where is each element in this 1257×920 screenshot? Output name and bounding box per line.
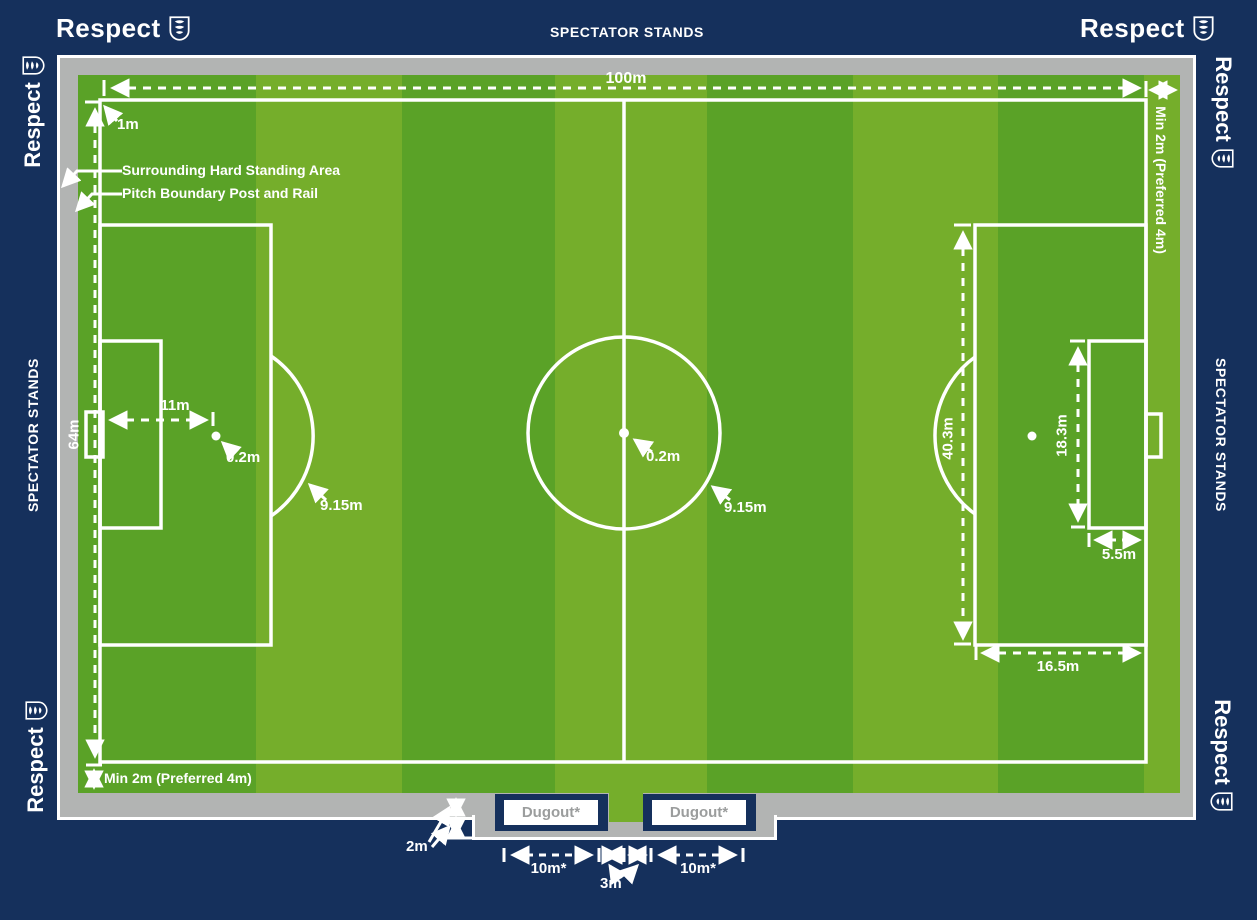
- penalty-area-left: [100, 225, 271, 645]
- penalty-arc-left: [271, 356, 313, 516]
- penalty-spot-right: [1028, 432, 1037, 441]
- spectator-stands-left: SPECTATOR STANDS: [18, 355, 48, 515]
- label-penalty-spot-size: 0.2m: [226, 449, 260, 466]
- label-dugout-offset-right: 10m*: [669, 860, 727, 877]
- label-goal-area-width: 18.3m: [1054, 401, 1071, 471]
- fa-crest-icon: [22, 56, 45, 75]
- label-goal-area-depth: 5.5m: [1093, 546, 1145, 563]
- fa-crest-icon: [1212, 149, 1235, 168]
- label-hard-standing: Surrounding Hard Standing Area: [122, 162, 340, 178]
- label-centre-circle-radius: 9.15m: [724, 499, 767, 516]
- pitch-diagram: Dugout* Dugout*: [0, 0, 1257, 920]
- spectator-stands-top: SPECTATOR STANDS: [450, 24, 804, 40]
- leader-3m-left: [610, 866, 616, 875]
- fa-crest-icon: [1211, 792, 1234, 811]
- label-dugout-gap: 3m: [600, 875, 622, 892]
- leader-1m: [105, 107, 117, 121]
- goal-area-left: [100, 341, 161, 528]
- spectator-stands-text: SPECTATOR STANDS: [1213, 358, 1229, 512]
- label-penalty-area-width: 40.3m: [940, 404, 957, 474]
- respect-text: Respect: [1209, 699, 1235, 785]
- respect-text: Respect: [56, 13, 161, 44]
- spectator-stands-text: SPECTATOR STANDS: [25, 358, 41, 512]
- respect-wordmark-right-top: Respect: [1208, 47, 1238, 177]
- respect-wordmark-left-bottom: Respect: [21, 692, 51, 822]
- label-pitch-width: 64m: [66, 403, 83, 467]
- label-runoff-bottom: Min 2m (Preferred 4m): [104, 770, 252, 786]
- label-standing-depth: 2m: [406, 838, 428, 855]
- respect-wordmark-top-right: Respect: [1080, 13, 1214, 44]
- goal-right: [1146, 414, 1161, 457]
- respect-text: Respect: [23, 727, 49, 813]
- centre-spot: [619, 428, 629, 438]
- fa-crest-icon: [169, 16, 190, 41]
- label-penalty-arc-radius: 9.15m: [320, 497, 363, 514]
- respect-text: Respect: [1080, 13, 1185, 44]
- label-pitch-length: 100m: [576, 70, 676, 88]
- respect-wordmark-right-bottom: Respect: [1207, 690, 1237, 820]
- goal-area-right: [1089, 341, 1146, 528]
- spectator-stands-right: SPECTATOR STANDS: [1206, 355, 1236, 515]
- respect-text: Respect: [1210, 56, 1236, 142]
- label-penalty-area-depth: 16.5m: [1026, 658, 1090, 675]
- label-runoff-right: Min 2m (Preferred 4m): [1153, 75, 1169, 285]
- label-corner-offset: 1m: [117, 116, 139, 133]
- respect-wordmark-top-left: Respect: [56, 13, 190, 44]
- respect-text: Respect: [20, 82, 46, 168]
- leader-hard-standing: [63, 171, 122, 186]
- label-centre-spot-size: 0.2m: [646, 448, 680, 465]
- label-post-rail: Pitch Boundary Post and Rail: [122, 185, 318, 201]
- label-dugout-offset-left: 10m*: [520, 860, 577, 877]
- respect-wordmark-left-top: Respect: [18, 47, 48, 177]
- fa-crest-icon: [1193, 16, 1214, 41]
- label-penalty-distance: 11m: [150, 397, 200, 414]
- fa-crest-icon: [25, 701, 48, 720]
- penalty-spot-left: [212, 432, 221, 441]
- leader-3m-right: [628, 866, 637, 875]
